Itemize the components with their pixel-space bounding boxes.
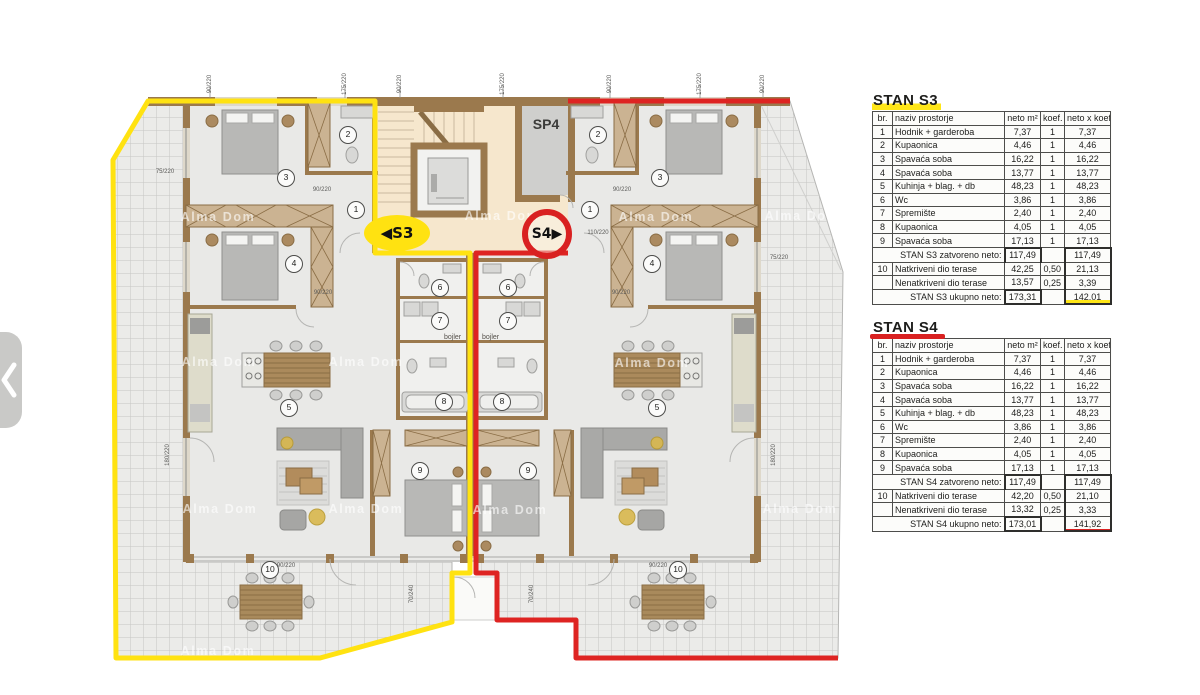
table-cell: 10 [873, 489, 893, 503]
table-cell: Spavaća soba [893, 461, 1005, 475]
watermark: Alma Dom [763, 502, 838, 516]
table-cell: 9 [873, 461, 893, 475]
table-cell: 2,40 [1065, 207, 1111, 221]
room-number-label: 9 [411, 462, 429, 480]
table-cell: Wc [893, 420, 1005, 434]
table-cell: 1 [1041, 393, 1065, 407]
table-header-cell: neto x koef. m² [1065, 339, 1111, 353]
table-cell: 4,05 [1005, 447, 1041, 461]
table-cell: Hodnik + garderoba [893, 125, 1005, 139]
table-cell: 9 [873, 234, 893, 248]
table-cell: 13,77 [1065, 393, 1111, 407]
dimension-label: 90/220 [613, 187, 631, 193]
table-cell: 7,37 [1005, 125, 1041, 139]
table-cell: 21,13 [1065, 262, 1111, 276]
table-cell: 42,25 [1005, 262, 1041, 276]
room-number-label: 5 [280, 399, 298, 417]
room-number-label: 9 [519, 462, 537, 480]
dimension-label: 90/220 [649, 563, 667, 569]
watermark: Alma Dom [765, 209, 840, 223]
table-cell: Kupaonica [893, 447, 1005, 461]
table-cell: STAN S3 ukupno neto: [873, 290, 1005, 305]
table-cell: 2 [873, 366, 893, 380]
room-number-label: 2 [339, 126, 357, 144]
table-cell: 173,31 [1005, 290, 1041, 305]
table-cell: 3,86 [1065, 193, 1111, 207]
table-cell: 8 [873, 220, 893, 234]
table-cell: 4,46 [1065, 139, 1111, 153]
table-cell: 1 [1041, 406, 1065, 420]
room-number-label: 3 [651, 169, 669, 187]
table-cell: 8 [873, 447, 893, 461]
table-cell: 48,23 [1005, 179, 1041, 193]
table-cell: 13,77 [1065, 166, 1111, 180]
table-cell: 1 [873, 125, 893, 139]
boiler-label-left: bojler [444, 334, 461, 341]
table-cell: 0,25 [1041, 503, 1065, 517]
table-cell [1041, 517, 1065, 532]
table-cell: 4 [873, 166, 893, 180]
table-cell: 117,49 [1065, 248, 1111, 262]
watermark: Alma Dom [181, 210, 256, 224]
table-cell: Nenatkriveni dio terase [893, 503, 1005, 517]
table-cell: 1 [1041, 434, 1065, 448]
table-cell: 1 [1041, 220, 1065, 234]
table-cell: 117,49 [1005, 475, 1041, 489]
room-number-label: 3 [277, 169, 295, 187]
table-cell: 3 [873, 152, 893, 166]
watermark: Alma Dom [182, 355, 257, 369]
table-cell: 2,40 [1065, 434, 1111, 448]
dimension-label: 90/220 [313, 187, 331, 193]
watermark: Alma Dom [183, 502, 258, 516]
table-header-cell: neto m² [1005, 339, 1041, 353]
table-cell: Spremište [893, 207, 1005, 221]
table-cell: 3,86 [1065, 420, 1111, 434]
dimension-label: 90/220 [314, 290, 332, 296]
dimension-label: 90/220 [397, 75, 403, 93]
dimension-label: 175/220 [697, 73, 703, 95]
table-cell: 2,40 [1005, 434, 1041, 448]
gallery-prev-button[interactable] [0, 332, 22, 428]
apartment-s4-badge: S4▶ [522, 209, 572, 259]
table-cell: 7,37 [1065, 352, 1111, 366]
table-cell: STAN S3 zatvoreno neto: [873, 248, 1005, 262]
table-cell: STAN S4 zatvoreno neto: [873, 475, 1005, 489]
table-cell: 1 [1041, 447, 1065, 461]
dimension-label: 180/220 [771, 444, 777, 466]
table-cell: 5 [873, 179, 893, 193]
room-number-label: 10 [261, 561, 279, 579]
table-cell: 4,46 [1005, 139, 1041, 153]
table-cell: 173,01 [1005, 517, 1041, 532]
dimension-label: 90/220 [207, 75, 213, 93]
dimension-label: 110/220 [587, 230, 608, 236]
table-cell: 4,46 [1005, 366, 1041, 380]
table-cell: 1 [1041, 461, 1065, 475]
dimension-label: 75/220 [156, 169, 174, 175]
table-header-cell: br. [873, 339, 893, 353]
table-header-cell: koef. [1041, 112, 1065, 126]
table-cell: 48,23 [1065, 179, 1111, 193]
dimension-label: 75/220 [770, 255, 788, 261]
table-cell: Spavaća soba [893, 152, 1005, 166]
table-stan-s3: STAN S3br.naziv prostorjeneto m²koef.net… [872, 92, 1110, 305]
table-header-cell: neto x koef. m² [1065, 112, 1111, 126]
table-cell: 48,23 [1005, 406, 1041, 420]
table-header-cell: br. [873, 112, 893, 126]
table-cell: 17,13 [1065, 234, 1111, 248]
room-number-label: 4 [285, 255, 303, 273]
table-header-cell: naziv prostorje [893, 112, 1005, 126]
table-cell: 0,25 [1041, 276, 1065, 290]
table-cell: 7,37 [1005, 352, 1041, 366]
entry-porch [454, 577, 495, 620]
table-cell: 1 [1041, 352, 1065, 366]
table-cell [873, 503, 893, 517]
dimension-label: 70/240 [529, 585, 535, 603]
table-cell: 117,49 [1065, 475, 1111, 489]
table-cell: 6 [873, 193, 893, 207]
table-cell: Natkriveni dio terase [893, 262, 1005, 276]
table-cell: 1 [1041, 207, 1065, 221]
dimension-label: 175/220 [342, 73, 348, 95]
dimension-label: 90/220 [277, 563, 295, 569]
table-cell: 1 [1041, 179, 1065, 193]
table-stan-s4: STAN S4br.naziv prostorjeneto m²koef.net… [872, 319, 1110, 532]
table-cell: Kuhinja + blag. + db [893, 179, 1005, 193]
table-cell: 0,50 [1041, 262, 1065, 276]
table-cell: 3 [873, 379, 893, 393]
table-cell: 1 [1041, 420, 1065, 434]
table-cell: 4,46 [1065, 366, 1111, 380]
dimension-label: 90/220 [612, 290, 630, 296]
dimension-label: 70/240 [409, 585, 415, 603]
table-cell: 13,32 [1005, 503, 1041, 517]
table-cell: 6 [873, 420, 893, 434]
table-cell: 3,39 [1065, 276, 1111, 290]
floorplan-drawing [0, 0, 860, 695]
floorplan-page: SP4 bojler bojler ◀S3 S4▶ STAN S3br.nazi… [0, 0, 1200, 695]
table-cell: Wc [893, 193, 1005, 207]
table-cell: 7,37 [1065, 125, 1111, 139]
table-cell: 4,05 [1065, 220, 1111, 234]
room-number-label: 7 [431, 312, 449, 330]
table-cell: 117,49 [1005, 248, 1041, 262]
table-cell: 0,50 [1041, 489, 1065, 503]
room-number-label: 6 [499, 279, 517, 297]
table-cell: 142,01 [1065, 290, 1111, 305]
dimension-label: 180/220 [165, 444, 171, 466]
table-cell: 5 [873, 406, 893, 420]
table-cell: 7 [873, 434, 893, 448]
table-cell [1041, 248, 1065, 262]
table-cell: Kupaonica [893, 220, 1005, 234]
table-title: STAN S4 [872, 319, 941, 337]
table-cell: 16,22 [1005, 379, 1041, 393]
table-cell: 1 [1041, 234, 1065, 248]
table-cell: 141,92 [1065, 517, 1111, 532]
dimension-label: 90/220 [607, 75, 613, 93]
room-number-label: 4 [643, 255, 661, 273]
table-title: STAN S3 [872, 92, 941, 110]
table-cell: 2 [873, 139, 893, 153]
boiler-label-right: bojler [482, 334, 499, 341]
table-cell: 4 [873, 393, 893, 407]
table-cell: 4,05 [1065, 447, 1111, 461]
table-cell: 16,22 [1065, 379, 1111, 393]
watermark: Alma Dom [615, 356, 690, 370]
room-number-label: 10 [669, 561, 687, 579]
table-cell: 17,13 [1005, 234, 1041, 248]
table-cell: Kuhinja + blag. + db [893, 406, 1005, 420]
room-number-label: 6 [431, 279, 449, 297]
room-number-label: 2 [589, 126, 607, 144]
watermark: Alma Dom [619, 210, 694, 224]
area-table: br.naziv prostorjeneto m²koef.neto x koe… [872, 111, 1112, 305]
area-table: br.naziv prostorjeneto m²koef.neto x koe… [872, 338, 1112, 532]
table-cell: Kupaonica [893, 366, 1005, 380]
table-cell: Kupaonica [893, 139, 1005, 153]
table-header-cell: koef. [1041, 339, 1065, 353]
room-number-label: 7 [499, 312, 517, 330]
dimension-label: 175/220 [500, 73, 506, 95]
table-cell: 17,13 [1065, 461, 1111, 475]
table-cell: 1 [1041, 152, 1065, 166]
table-cell: 13,77 [1005, 166, 1041, 180]
room-number-label: 5 [648, 399, 666, 417]
table-cell: 21,10 [1065, 489, 1111, 503]
table-cell: Spavaća soba [893, 379, 1005, 393]
table-cell: Nenatkriveni dio terase [893, 276, 1005, 290]
table-cell: 4,05 [1005, 220, 1041, 234]
table-cell: 1 [1041, 139, 1065, 153]
room-number-label: 8 [493, 393, 511, 411]
chevron-left-icon [0, 357, 18, 403]
watermark: Alma Dom [473, 503, 548, 517]
table-cell: Spavaća soba [893, 234, 1005, 248]
table-cell [873, 276, 893, 290]
table-cell: Natkriveni dio terase [893, 489, 1005, 503]
table-cell: 3,86 [1005, 420, 1041, 434]
table-cell: 16,22 [1065, 152, 1111, 166]
table-cell: 13,57 [1005, 276, 1041, 290]
table-cell: 1 [1041, 125, 1065, 139]
table-cell: 1 [1041, 166, 1065, 180]
table-cell [1041, 290, 1065, 305]
table-cell: 48,23 [1065, 406, 1111, 420]
table-cell: 1 [873, 352, 893, 366]
room-number-label: 8 [435, 393, 453, 411]
table-cell: 3,86 [1005, 193, 1041, 207]
sp4-room-label: SP4 [524, 116, 568, 132]
table-header-cell: naziv prostorje [893, 339, 1005, 353]
room-number-label: 1 [581, 201, 599, 219]
table-cell [1041, 475, 1065, 489]
watermark: Alma Dom [329, 502, 404, 516]
dimension-label: 90/220 [760, 75, 766, 93]
table-cell: 10 [873, 262, 893, 276]
table-cell: 13,77 [1005, 393, 1041, 407]
table-cell: 3,33 [1065, 503, 1111, 517]
table-cell: Hodnik + garderoba [893, 352, 1005, 366]
table-cell: 1 [1041, 379, 1065, 393]
watermark: Alma Dom [181, 644, 256, 658]
table-header-cell: neto m² [1005, 112, 1041, 126]
room-number-label: 1 [347, 201, 365, 219]
table-cell: Spavaća soba [893, 166, 1005, 180]
table-cell: 17,13 [1005, 461, 1041, 475]
dimension-ticks [210, 86, 763, 98]
table-cell: 2,40 [1005, 207, 1041, 221]
table-cell: 7 [873, 207, 893, 221]
table-cell: Spremište [893, 434, 1005, 448]
table-cell: STAN S4 ukupno neto: [873, 517, 1005, 532]
table-cell: Spavaća soba [893, 393, 1005, 407]
table-cell: 1 [1041, 193, 1065, 207]
table-cell: 16,22 [1005, 152, 1041, 166]
table-cell: 1 [1041, 366, 1065, 380]
apartment-s3-badge: ◀S3 [364, 215, 430, 251]
table-cell: 42,20 [1005, 489, 1041, 503]
watermark: Alma Dom [329, 355, 404, 369]
